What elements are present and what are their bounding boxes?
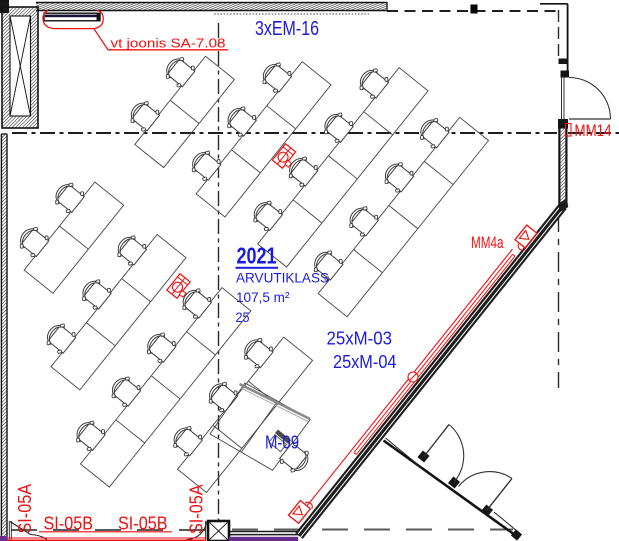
svg-text:ARVUTIKLASS: ARVUTIKLASS — [236, 271, 329, 287]
svg-text:vt joonis SA-7.08: vt joonis SA-7.08 — [111, 36, 226, 51]
svg-text:SI-05A: SI-05A — [187, 485, 207, 535]
svg-text:107,5 m²: 107,5 m² — [236, 290, 290, 306]
svg-text:SI-05B: SI-05B — [118, 514, 168, 534]
svg-text:SI-05B: SI-05B — [44, 514, 94, 534]
svg-text:MM14: MM14 — [575, 121, 612, 140]
svg-text:25xM-03: 25xM-03 — [327, 328, 393, 349]
svg-text:25xM-04: 25xM-04 — [333, 351, 397, 372]
svg-text:SI-05A: SI-05A — [15, 484, 35, 534]
svg-text:3xEM-16: 3xEM-16 — [255, 18, 319, 40]
svg-text:M-09: M-09 — [265, 432, 299, 453]
svg-text:MM4a: MM4a — [471, 234, 504, 252]
svg-text:25: 25 — [236, 310, 250, 326]
svg-text:2021: 2021 — [237, 243, 277, 269]
